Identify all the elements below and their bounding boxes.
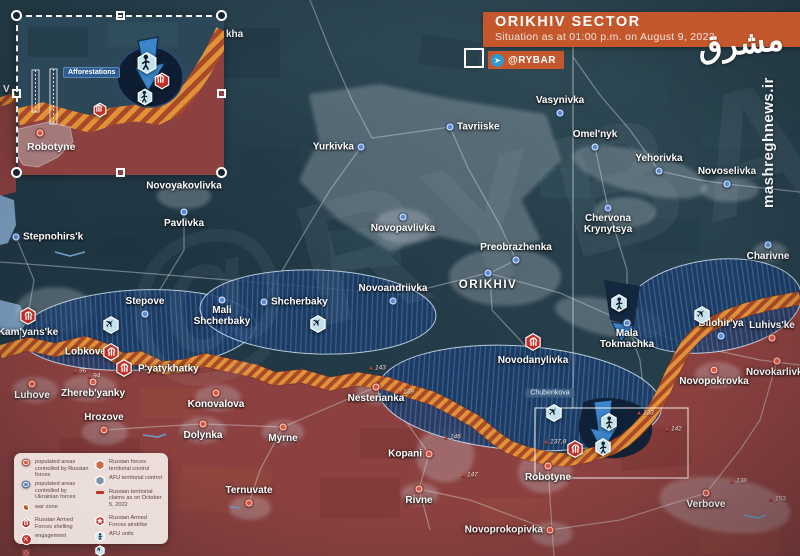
legend-label: war zone bbox=[35, 504, 58, 511]
corner-marker bbox=[11, 167, 22, 178]
inset-shelling-marker bbox=[154, 73, 171, 90]
map-legend: populated areas controlled by Russian fo… bbox=[14, 453, 168, 544]
telegram-icon: ➤ bbox=[491, 54, 504, 67]
dot-ua-icon bbox=[23, 482, 29, 488]
legend-label: Russian territorial claims as on October… bbox=[109, 489, 164, 509]
legend-label: Russian Armed Forces airstrike bbox=[109, 515, 164, 528]
afu-unit-icon bbox=[95, 531, 106, 542]
legend-item-afu-territorial-control: AFU territorial control bbox=[94, 475, 164, 487]
legend-label: AFU's tactical aviation bbox=[109, 545, 164, 552]
legend-item-russian-armed-forces-shelling: Russian Armed Forces shelling bbox=[20, 517, 90, 530]
legend-label: engagement bbox=[35, 533, 66, 540]
legend-icon-wrap bbox=[94, 515, 106, 526]
legend-icon-wrap: ✕ bbox=[20, 548, 32, 556]
edge-handle bbox=[116, 168, 125, 177]
legend-label: populated areas controlled by Russian fo… bbox=[35, 459, 90, 479]
legend-item-russian-territorial-claims-as-: Russian territorial claims as on October… bbox=[94, 489, 164, 509]
legend-item-russian-forces-territorial-con: Russian forces territorial control bbox=[94, 459, 164, 472]
edge-handle bbox=[116, 11, 125, 20]
airstrike-icon bbox=[95, 515, 106, 526]
engagement-icon bbox=[21, 534, 32, 545]
legend-label: AFU territorial control bbox=[109, 475, 162, 482]
inset-afu-unit-marker bbox=[136, 52, 158, 74]
shelling-icon bbox=[154, 73, 171, 90]
claim-line-icon bbox=[96, 491, 104, 494]
robotyne-inset-map: Afforestations Robotyne bbox=[16, 15, 222, 173]
legend-icon-wrap bbox=[20, 518, 32, 529]
orikhiv-sector-map: @RYBAR VasynivkaTavriiskeYurkivkaOmel'ny… bbox=[0, 0, 800, 556]
corner-marker bbox=[216, 10, 227, 21]
afforestations-label: Afforestations bbox=[63, 67, 120, 78]
legend-item-populated-areas-controlled-by-: populated areas controlled by Russian fo… bbox=[20, 459, 90, 479]
hex-ru-icon bbox=[95, 460, 106, 471]
war-zone-icon bbox=[23, 504, 30, 511]
legend-icon-wrap bbox=[94, 460, 106, 471]
inset-town-dot bbox=[37, 130, 44, 137]
channel-name: @RYBAR bbox=[508, 55, 556, 66]
inset-shelling-marker bbox=[93, 103, 108, 118]
corner-marker bbox=[216, 167, 227, 178]
legend-item-war-zone: war zone bbox=[20, 504, 90, 511]
legend-icon-wrap bbox=[20, 504, 32, 511]
west-bank-russian-strip bbox=[0, 99, 16, 196]
shelling-icon bbox=[21, 518, 32, 529]
aviation-icon: ✈ bbox=[95, 545, 106, 556]
legend-icon-wrap bbox=[94, 531, 106, 542]
legend-icon-wrap: ✈ bbox=[94, 545, 106, 556]
legend-label: Russian forces territorial control bbox=[109, 459, 164, 472]
legend-column-1: populated areas controlled by Russian fo… bbox=[20, 459, 90, 540]
hex-ua-icon bbox=[95, 475, 106, 486]
edge-handle bbox=[217, 89, 226, 98]
disrupted-icon: ✕ bbox=[23, 548, 30, 556]
legend-item-populated-areas-controlled-by-: populated areas controlled by Ukrainian … bbox=[20, 481, 90, 501]
legend-item-engagement: engagement bbox=[20, 533, 90, 545]
legend-icon-wrap bbox=[94, 475, 106, 486]
legend-item-russian-armed-forces-airstrike: Russian Armed Forces airstrike bbox=[94, 515, 164, 528]
legend-label: disrupted offensive bbox=[35, 547, 82, 554]
corner-marker bbox=[11, 10, 22, 21]
legend-icon-wrap bbox=[94, 489, 106, 494]
rybar-channel-badge[interactable]: ➤ @RYBAR bbox=[488, 51, 564, 69]
legend-item-disrupted-offensive: ✕disrupted offensive bbox=[20, 547, 90, 556]
inset-afu-unit-marker bbox=[137, 89, 154, 106]
legend-label: populated areas controlled by Ukrainian … bbox=[35, 481, 90, 501]
shelling-icon bbox=[93, 103, 108, 118]
legend-column-2: Russian forces territorial controlAFU te… bbox=[94, 459, 164, 540]
legend-icon-wrap bbox=[20, 534, 32, 545]
inset-town-label: Robotyne bbox=[27, 141, 75, 153]
edge-handle bbox=[12, 89, 21, 98]
legend-item-afu-units: AFU units bbox=[94, 531, 164, 543]
legend-label: AFU units bbox=[109, 531, 134, 538]
legend-icon-wrap bbox=[20, 482, 32, 488]
frame-handle bbox=[464, 48, 484, 68]
legend-icon-wrap bbox=[20, 460, 32, 466]
dot-ru-icon bbox=[23, 460, 29, 466]
legend-label: Russian Armed Forces shelling bbox=[35, 517, 90, 530]
water-body bbox=[0, 195, 16, 245]
legend-item-afu-s-tactical-aviation: ✈AFU's tactical aviation bbox=[94, 545, 164, 556]
afu-unit-icon bbox=[136, 52, 158, 74]
afu-unit-icon bbox=[137, 89, 154, 106]
